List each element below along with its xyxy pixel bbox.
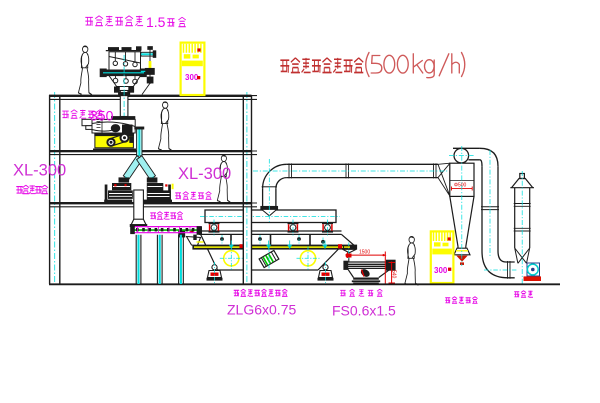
svg-text:FS0.6x1.5: FS0.6x1.5 — [332, 303, 396, 319]
svg-text:ZLG6x0.75: ZLG6x0.75 — [227, 302, 296, 318]
svg-text:1500: 1500 — [359, 250, 370, 256]
svg-text:350: 350 — [90, 108, 114, 124]
svg-text:XL-300: XL-300 — [178, 165, 231, 183]
svg-text:540: 540 — [390, 270, 396, 279]
svg-text:300: 300 — [434, 266, 448, 275]
svg-text:XL-300: XL-300 — [13, 162, 66, 180]
svg-text:1.5: 1.5 — [146, 14, 166, 30]
svg-text:Φ500: Φ500 — [454, 182, 467, 188]
svg-text:300: 300 — [185, 73, 199, 82]
